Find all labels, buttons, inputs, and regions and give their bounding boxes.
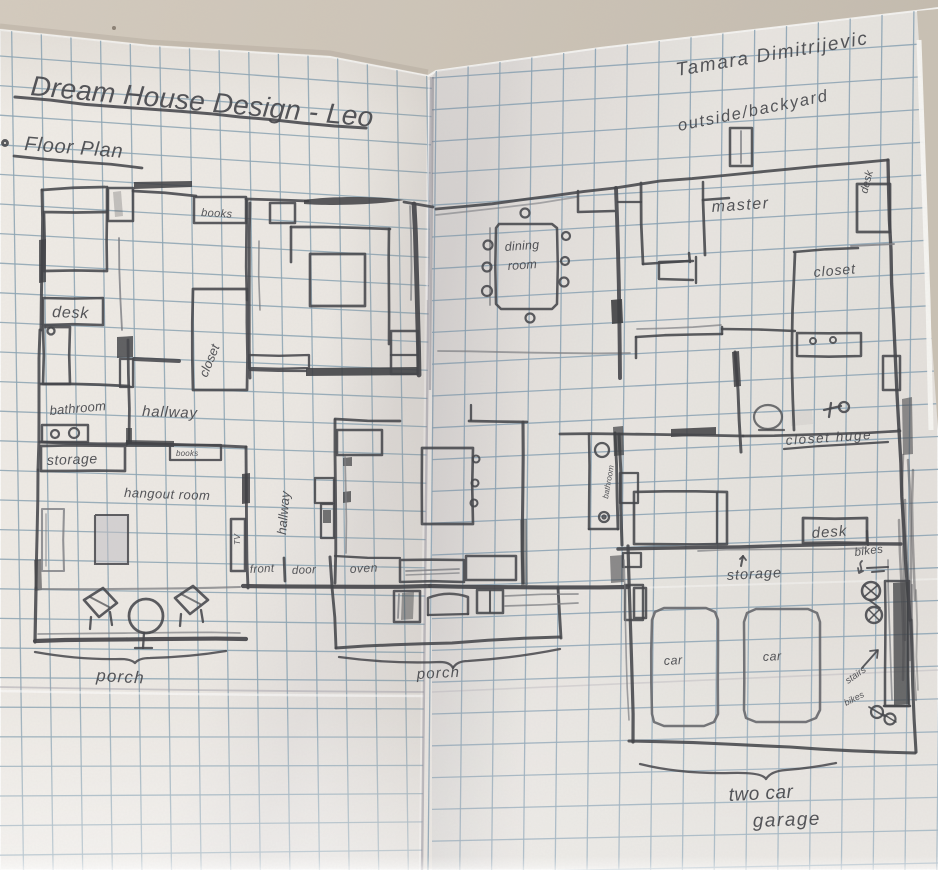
svg-text:room: room [507,257,537,273]
svg-text:books: books [201,207,233,221]
svg-text:car: car [663,653,683,668]
svg-text:desk: desk [52,304,90,322]
svg-text:dining: dining [504,238,539,254]
svg-text:garage: garage [752,809,821,832]
svg-text:hangout room: hangout room [124,485,211,503]
svg-text:storage: storage [47,450,98,468]
svg-text:two car: two car [728,782,794,806]
svg-text:porch: porch [415,664,460,683]
svg-text:door: door [292,564,317,577]
svg-text:car: car [762,649,782,664]
svg-text:front: front [250,563,276,576]
svg-text:hallway: hallway [142,403,199,422]
svg-text:storage: storage [726,565,782,584]
svg-text:books: books [176,449,198,458]
svg-text:TV: TV [232,533,242,545]
svg-text:desk: desk [811,523,848,542]
svg-text:oven: oven [349,561,378,576]
svg-text:porch: porch [95,666,145,688]
